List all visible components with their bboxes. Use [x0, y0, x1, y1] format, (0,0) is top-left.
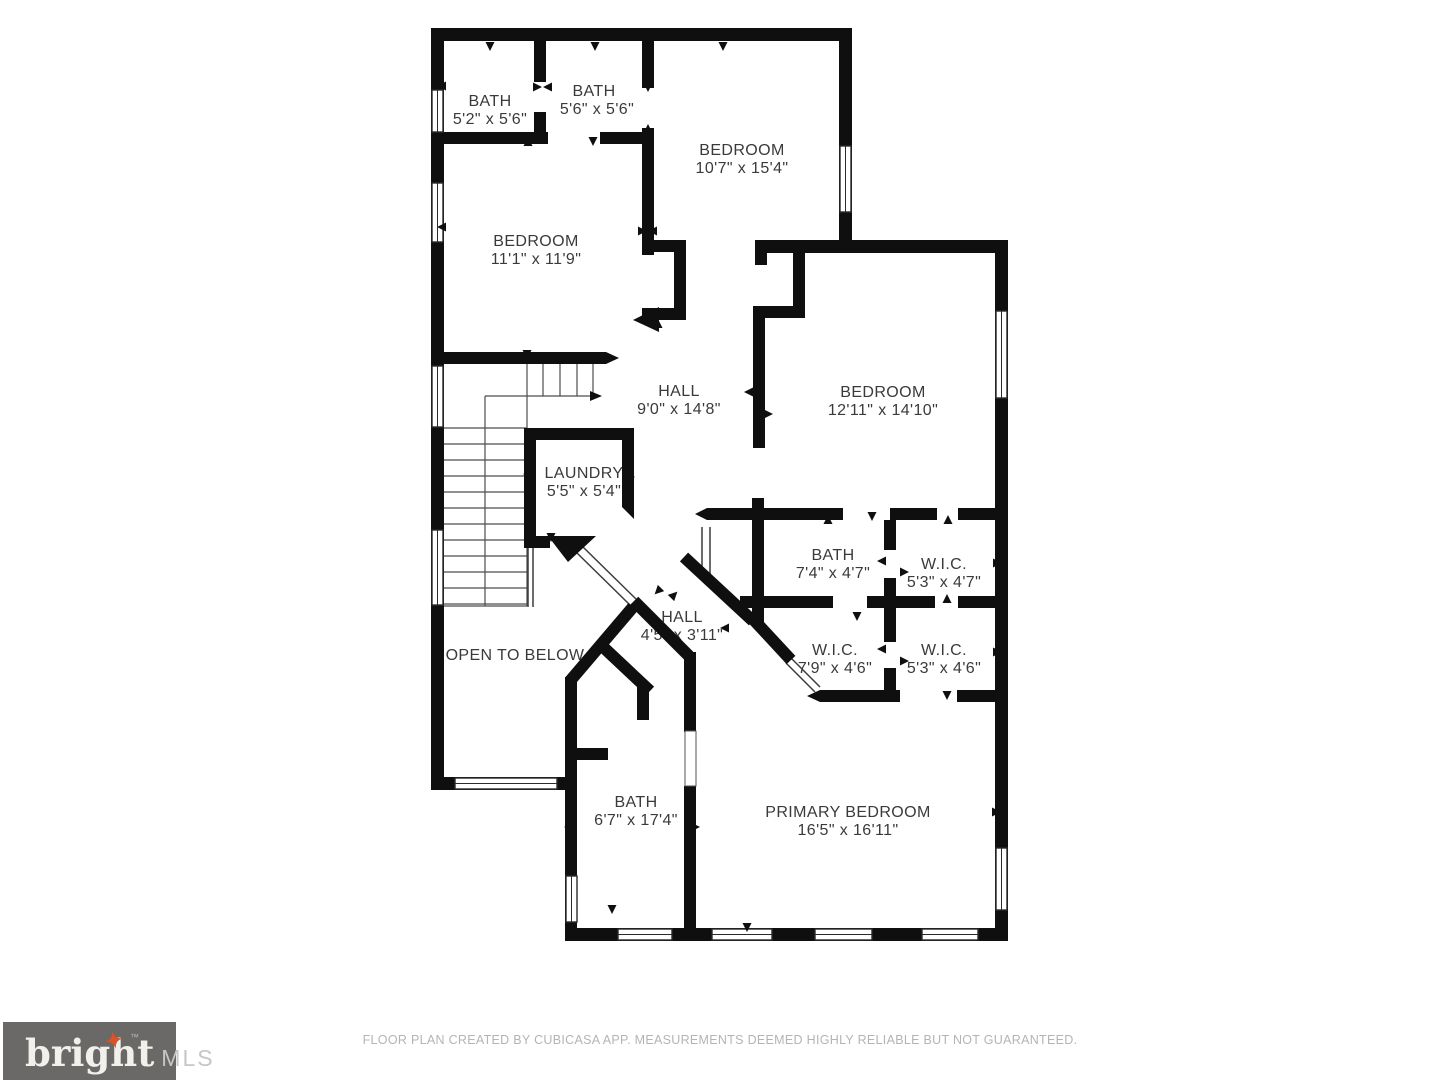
- room-label-name: BATH: [614, 794, 657, 811]
- room-label-name: BATH: [811, 547, 854, 564]
- floor-plan-drawing: BATH 5'2" x 5'6" BATH 5'6" x 5'6" BEDROO…: [0, 0, 1440, 1080]
- room-label-name: W.I.C.: [812, 642, 858, 659]
- room-label-name: HALL: [661, 609, 703, 626]
- room-label-name: LAUNDRY: [545, 465, 624, 482]
- brand-logo-box: bright MLS ™: [3, 1022, 176, 1080]
- room-label-dims: 5'3" x 4'7": [907, 574, 981, 591]
- room-label-dims: 5'2" x 5'6": [453, 111, 527, 128]
- room-label-name: PRIMARY BEDROOM: [765, 804, 930, 821]
- brand-star-icon: [103, 1029, 125, 1051]
- room-label-dims: 7'4" x 4'7": [796, 565, 870, 582]
- room-label-dims: 5'3" x 4'6": [907, 660, 981, 677]
- floor-plan-page: BATH 5'2" x 5'6" BATH 5'6" x 5'6" BEDROO…: [0, 0, 1440, 1080]
- sparkle-shape: [103, 1029, 124, 1050]
- room-label-dims: 7'9" x 4'6": [798, 660, 872, 677]
- stair-direction-arrow: [590, 391, 602, 401]
- room-label-name: BATH: [572, 83, 615, 100]
- room-label-name: HALL: [658, 383, 700, 400]
- room-label-name: BEDROOM: [493, 233, 578, 250]
- room-label-dims: 11'1" x 11'9": [491, 251, 582, 268]
- room-label-dims: 6'7" x 17'4": [594, 812, 678, 829]
- room-label-dims: 9'0" x 14'8": [637, 401, 721, 418]
- room-label-dims: 12'11" x 14'10": [828, 402, 938, 419]
- room-label-dims: 10'7" x 15'4": [696, 160, 789, 177]
- room-label-name: BATH: [468, 93, 511, 110]
- room-label-dims: 5'6" x 5'6": [560, 101, 634, 118]
- brand-logo-suffix: MLS: [161, 1045, 214, 1072]
- room-label-name: W.I.C.: [921, 642, 967, 659]
- room-label-name: OPEN TO BELOW: [446, 647, 585, 664]
- room-label-name: BEDROOM: [699, 142, 784, 159]
- room-label-name: W.I.C.: [921, 556, 967, 573]
- room-label-dims: 5'5" x 5'4": [547, 483, 621, 500]
- room-label-name: BEDROOM: [840, 384, 925, 401]
- brand-trademark: ™: [130, 1032, 139, 1042]
- footer-disclaimer: FLOOR PLAN CREATED BY CUBICASA APP. MEAS…: [0, 1033, 1440, 1047]
- room-label-dims: 16'5" x 16'11": [797, 822, 898, 839]
